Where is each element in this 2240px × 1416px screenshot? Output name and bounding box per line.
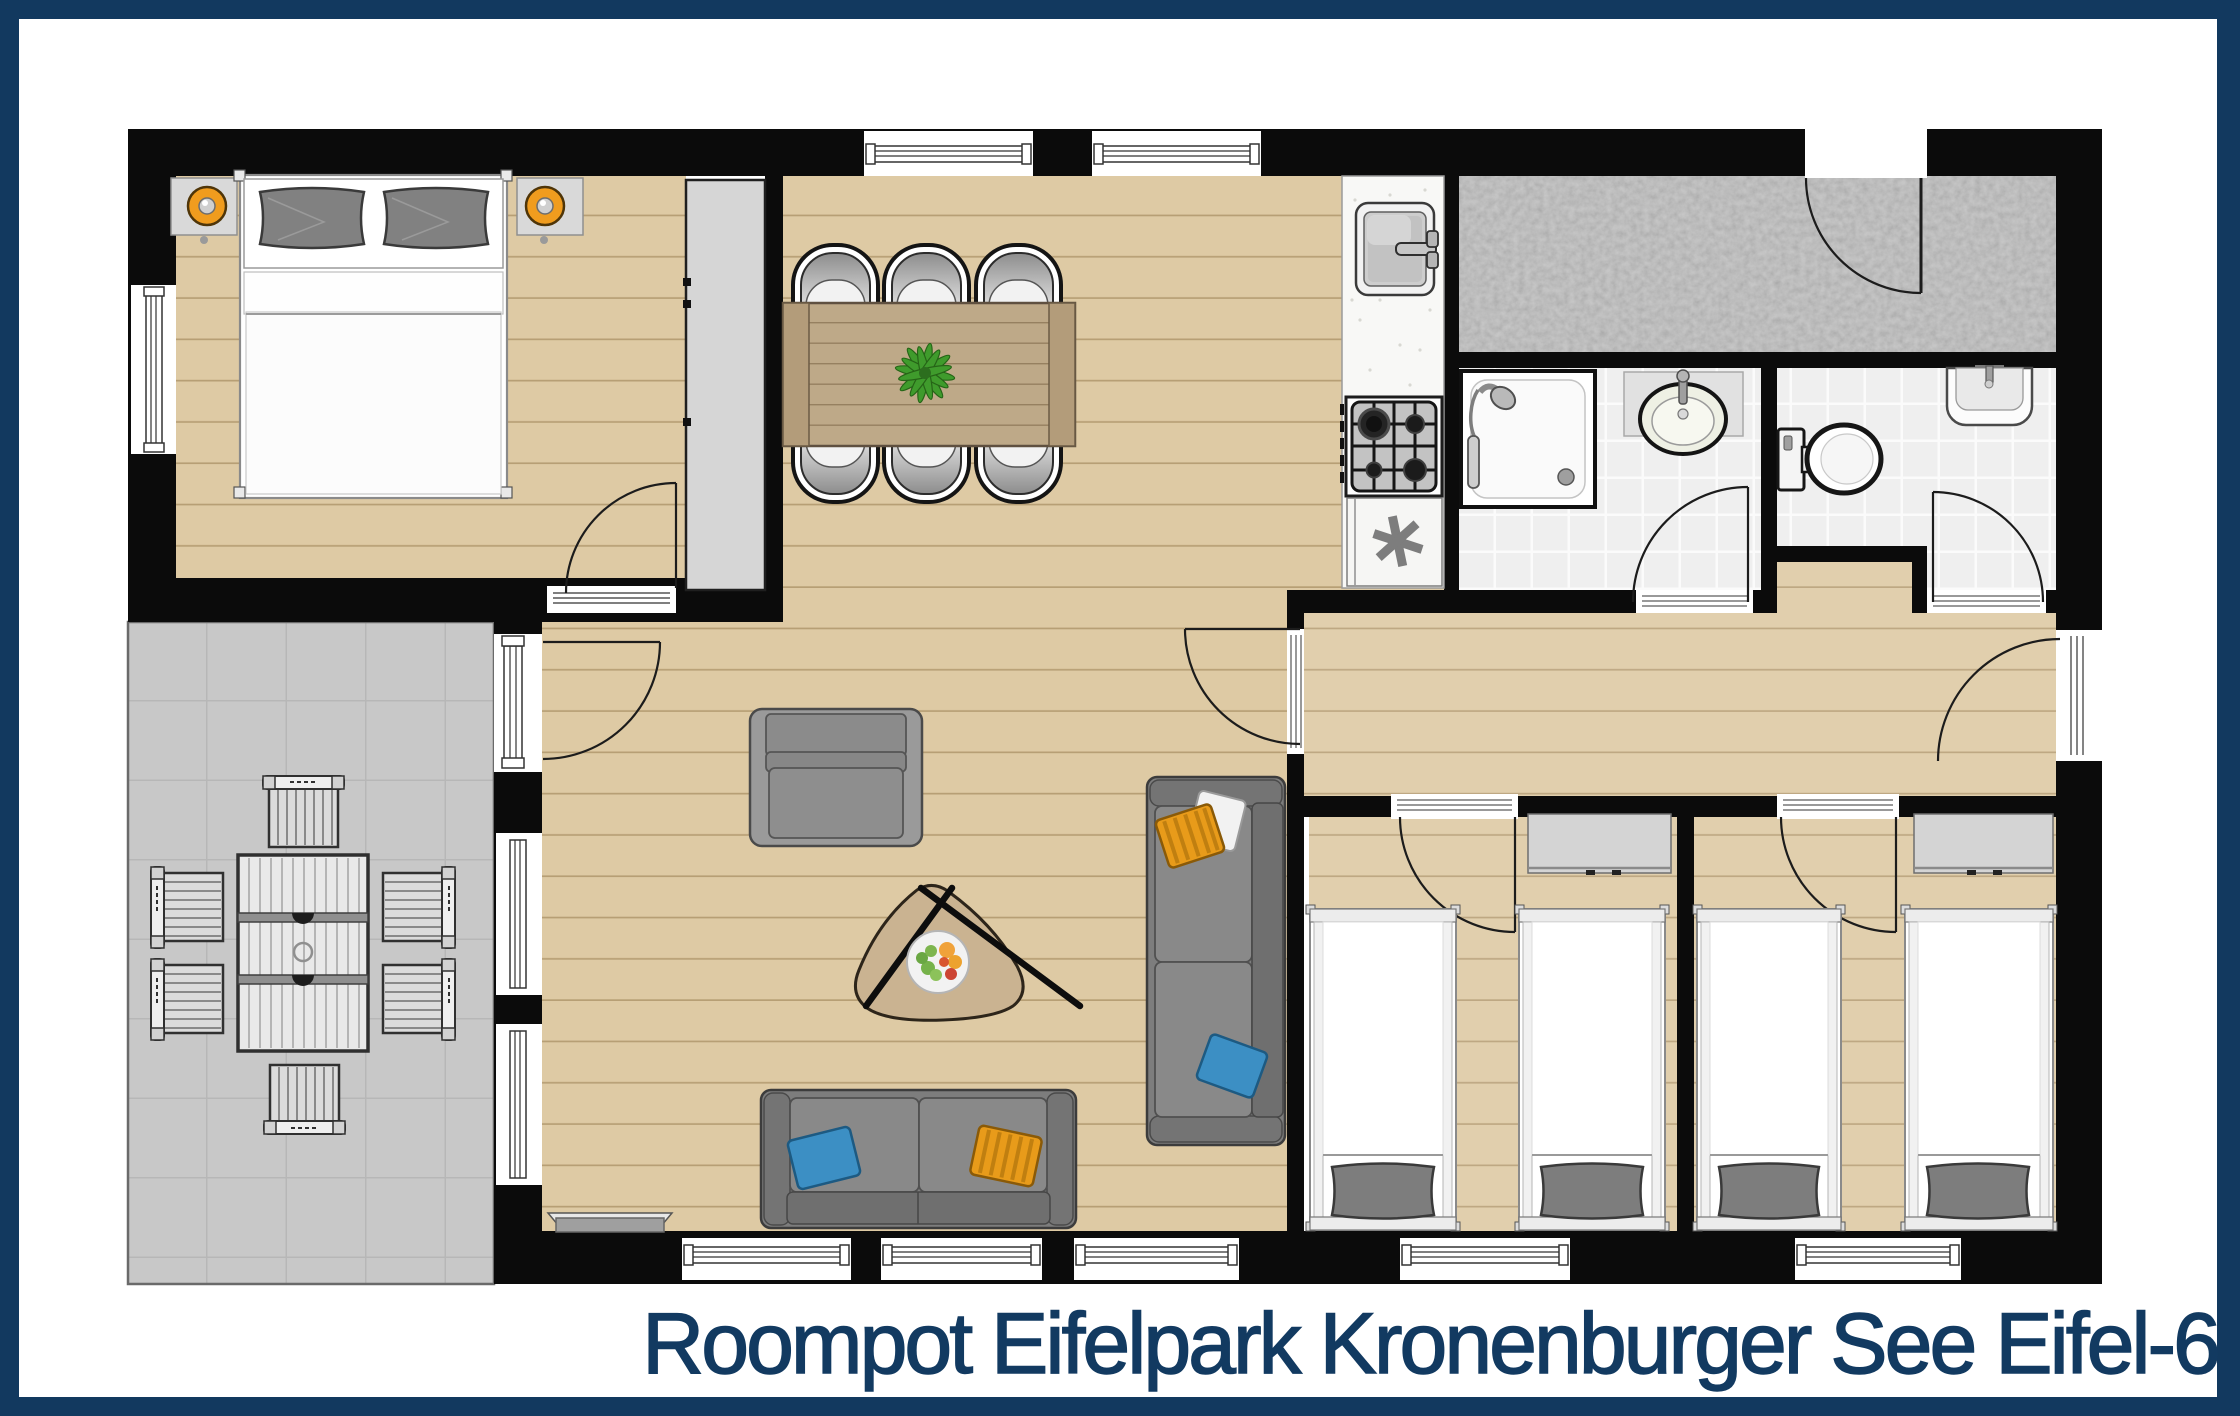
svg-text:Roompot Eifelpark Kronenburger: Roompot Eifelpark Kronenburger See Eifel… bbox=[642, 1296, 2218, 1392]
